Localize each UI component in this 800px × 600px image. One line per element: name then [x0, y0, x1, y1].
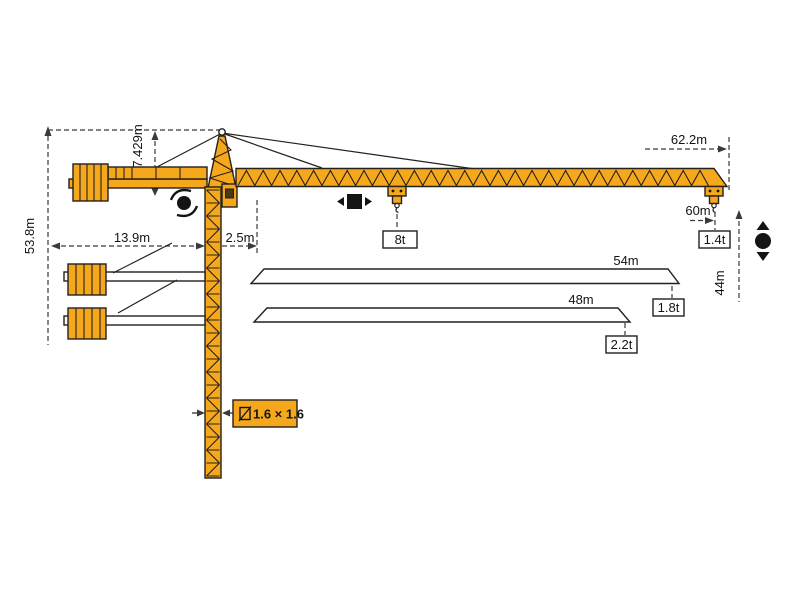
max-jib-label: 62.2m: [671, 132, 707, 147]
crane-structure: [64, 129, 727, 478]
crane-diagram-svg: 8t 1.4t 1.8t 2.2t 1.6 × 1.6 53.8m 7.429m…: [0, 0, 800, 600]
trolley-mid: [388, 187, 406, 213]
jib48-length-label: 48m: [568, 292, 593, 307]
arrow-up-icon: [152, 131, 159, 140]
trolley-sheave: [717, 190, 720, 193]
arrow-left-icon: [337, 197, 344, 206]
arrow-up-icon: [757, 221, 770, 230]
arrow-down-icon: [152, 189, 159, 197]
counterweight-block: [73, 164, 108, 201]
arrow-right-icon: [718, 146, 727, 153]
hoist-dot: [755, 233, 771, 249]
trolley-sheave: [392, 190, 395, 193]
arrow-left-icon: [222, 410, 230, 417]
counterjib-panel: [108, 167, 207, 179]
tip-load-value-48m: 2.2t: [611, 337, 633, 352]
tip-load-value-54m: 1.8t: [658, 300, 680, 315]
jib-outline-48m: [254, 308, 630, 322]
trolley-sheave: [709, 190, 712, 193]
jib54-length-label: 54m: [613, 253, 638, 268]
under-hook-label: 44m: [712, 270, 727, 295]
counterjib-option-2: [64, 308, 205, 339]
counter-jib-label: 13.9m: [114, 230, 150, 245]
hook-block: [710, 196, 719, 204]
arrow-down-icon: [757, 252, 770, 261]
jib-outline-54m: [251, 269, 679, 284]
trolley-square: [347, 194, 362, 209]
arrow-right-icon: [197, 410, 205, 417]
slew-rotation-icon: [171, 190, 197, 216]
tower-apex-pin: [219, 129, 225, 135]
pendant-ropes: [155, 133, 482, 170]
counterjib-option-1: [64, 264, 205, 295]
hook-block: [393, 196, 402, 204]
tower-top: [208, 136, 236, 188]
tip-load-value-62m: 1.4t: [704, 232, 726, 247]
trolley-body: [705, 187, 723, 197]
arrow-right-icon: [196, 243, 205, 250]
arrow-right-icon: [365, 197, 372, 206]
arrow-left-icon: [51, 243, 60, 250]
crane-diagram: 8t 1.4t 1.8t 2.2t 1.6 × 1.6 53.8m 7.429m…: [0, 0, 800, 600]
arrow-right-icon: [705, 217, 714, 224]
trolley-sheave: [400, 190, 403, 193]
rear-offset-label: 2.5m: [226, 230, 255, 245]
hoist-icon: [755, 221, 771, 261]
slew-dot: [177, 196, 191, 210]
cab-window: [226, 189, 234, 198]
max-load-value: 8t: [395, 232, 406, 247]
total-height-label: 53.8m: [22, 218, 37, 254]
trolley-travel-icon: [337, 194, 372, 209]
trolley-body: [388, 187, 406, 197]
tower-head-label: 7.429m: [130, 124, 145, 167]
mast-section-value: 1.6 × 1.6: [253, 407, 304, 422]
arrow-up-icon: [45, 126, 52, 136]
arrow-up-icon: [736, 210, 743, 219]
motion-symbols: [171, 190, 771, 261]
jib-length-options: [251, 269, 679, 322]
max-radius-label: 60m: [685, 203, 710, 218]
load-labels: 8t 1.4t 1.8t 2.2t: [383, 231, 730, 353]
